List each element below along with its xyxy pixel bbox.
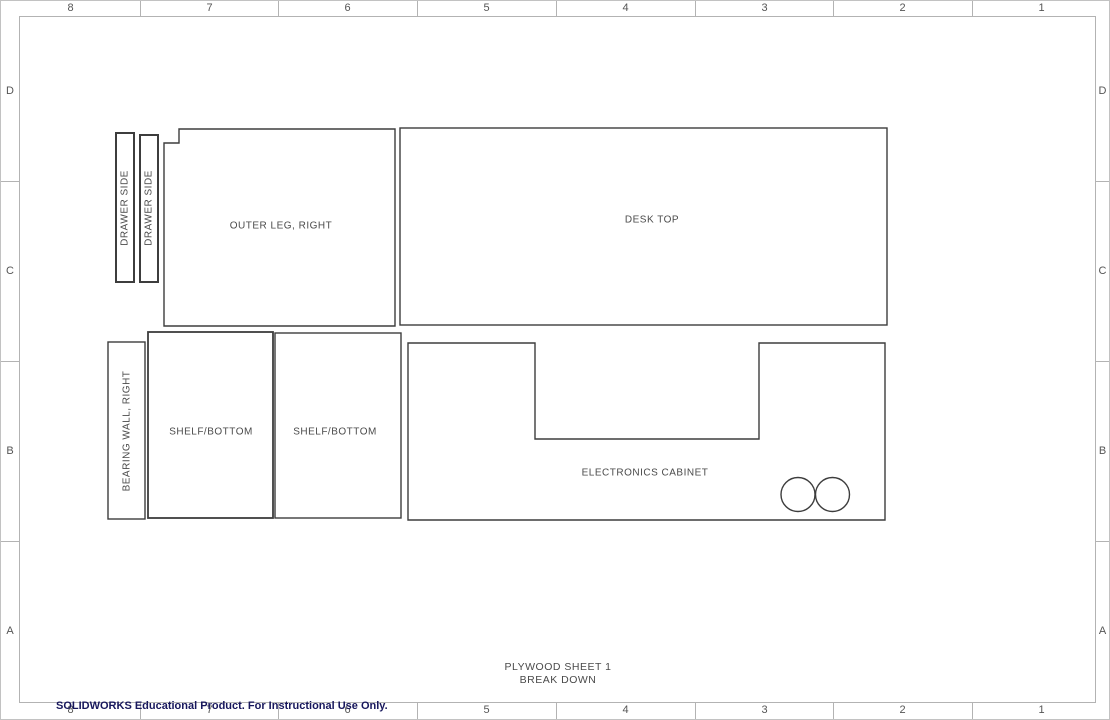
shelf-bottom-2-outline[interactable] (275, 333, 401, 518)
drawer-side-1-label: DRAWER SIDE (120, 170, 131, 246)
desk-top-label: DESK TOP (625, 215, 679, 226)
sheet-title-line1: PLYWOOD SHEET 1 (505, 661, 612, 674)
cabinet-hole-1[interactable] (781, 478, 815, 512)
cabinet-hole-2[interactable] (816, 478, 850, 512)
drawer-side-2-label: DRAWER SIDE (144, 170, 155, 246)
shelf-bottom-1-label: SHELF/BOTTOM (169, 427, 253, 438)
drawing-sheet: 8 7 6 5 4 3 2 1 8 7 6 5 4 3 2 1 D C B A … (0, 0, 1110, 720)
shelf-bottom-1-outline[interactable] (148, 332, 273, 518)
bearing-wall-right-label: BEARING WALL, RIGHT (122, 371, 133, 492)
solidworks-watermark: SOLIDWORKS Educational Product. For Inst… (56, 700, 388, 712)
outer-leg-right-label: OUTER LEG, RIGHT (230, 221, 332, 232)
desk-top-outline[interactable] (400, 128, 887, 325)
shelf-bottom-2-label: SHELF/BOTTOM (293, 427, 377, 438)
sheet-title-line2: BREAK DOWN (505, 674, 612, 687)
sheet-title: PLYWOOD SHEET 1 BREAK DOWN (505, 661, 612, 687)
electronics-cabinet-label: ELECTRONICS CABINET (582, 468, 709, 479)
